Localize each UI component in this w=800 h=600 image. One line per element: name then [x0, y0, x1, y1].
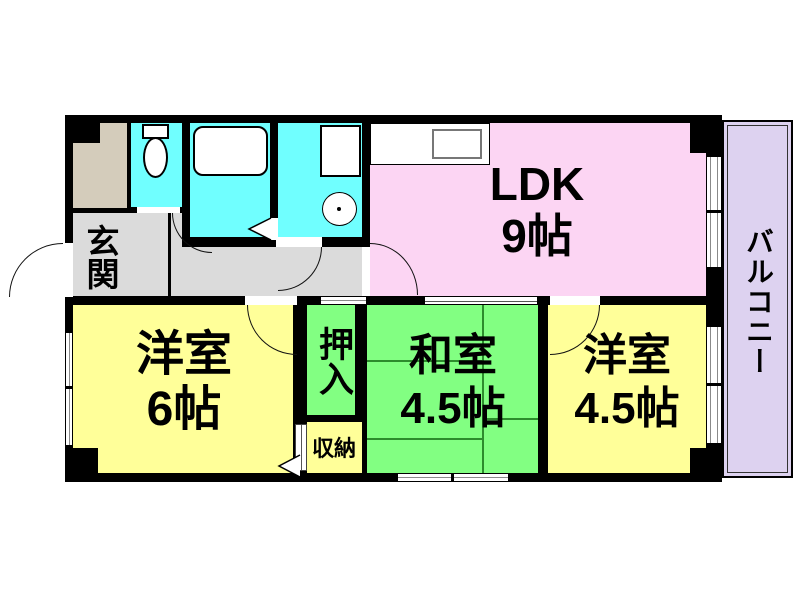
western45-name: 洋室	[548, 329, 706, 382]
ldk-door-opening	[362, 247, 370, 296]
ldk-label: LDK 9帖	[404, 158, 670, 270]
western45-door-opening	[550, 296, 600, 305]
western45-label: 洋室 4.5帖	[548, 329, 706, 441]
washing-machine-icon	[320, 125, 361, 177]
bath-folding-door-icon	[245, 215, 273, 243]
bathtub-icon	[193, 126, 268, 176]
ldk-name: LDK	[404, 158, 670, 210]
western6-door-opening	[245, 296, 297, 305]
japanese-label: 和室 4.5帖	[369, 329, 537, 441]
japanese-size: 4.5帖	[369, 382, 537, 435]
entrance-step-line	[168, 213, 171, 296]
closet-fusuma	[321, 297, 366, 304]
balcony-label: バルコニー	[741, 182, 773, 422]
pillar-bottom-right	[690, 448, 722, 482]
western6-name: 洋室	[78, 327, 290, 382]
front-door-opening	[65, 243, 73, 297]
storage-label: 収納	[306, 437, 362, 461]
ldk-size: 9帖	[404, 210, 670, 262]
japanese-name: 和室	[369, 329, 537, 382]
floor-plan: バルコニー	[0, 0, 800, 600]
pillar-top-left	[65, 115, 100, 143]
window-western6-left	[66, 333, 72, 445]
pillar-top-right	[690, 115, 722, 153]
ldk-japanese-sliding-door	[425, 296, 537, 304]
kitchen-sink-icon	[432, 129, 482, 159]
window-western45-balcony	[707, 327, 721, 443]
storage-folding-door-icon	[276, 452, 302, 480]
entrance-label: 玄関	[78, 216, 118, 298]
pillar-bottom-left	[65, 448, 98, 482]
closet-label: 押入	[312, 311, 352, 411]
washroom-door-opening	[276, 237, 322, 247]
western45-size: 4.5帖	[548, 382, 706, 435]
hallway	[182, 247, 362, 296]
window-ldk-balcony	[707, 157, 721, 267]
window-japanese-bottom	[398, 474, 508, 481]
front-door-arc	[9, 243, 63, 297]
toilet-bowl-icon	[143, 137, 168, 178]
western6-size: 6帖	[78, 382, 290, 437]
western6-label: 洋室 6帖	[78, 327, 290, 439]
wash-basin-faucet-dot	[337, 207, 341, 211]
